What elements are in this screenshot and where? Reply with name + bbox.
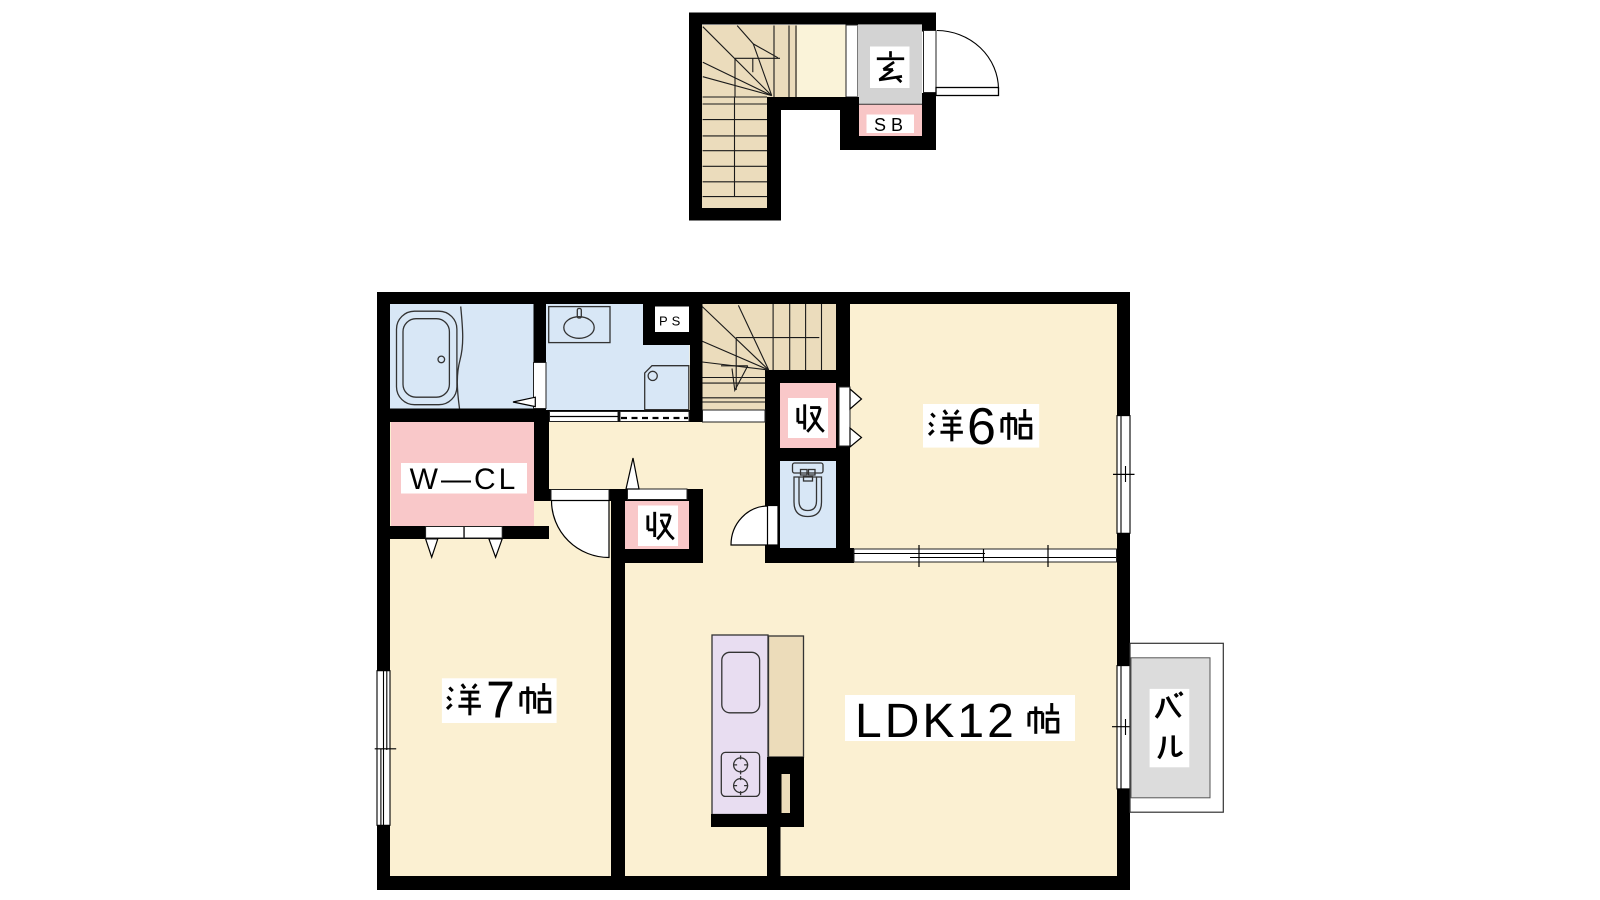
svg-text:7: 7 <box>486 672 515 730</box>
svg-text:W—CL: W—CL <box>410 463 519 496</box>
svg-text:6: 6 <box>967 398 996 456</box>
svg-text:PS: PS <box>659 314 684 329</box>
svg-text:LDK12: LDK12 <box>855 695 1017 748</box>
svg-text:SB: SB <box>874 115 908 135</box>
